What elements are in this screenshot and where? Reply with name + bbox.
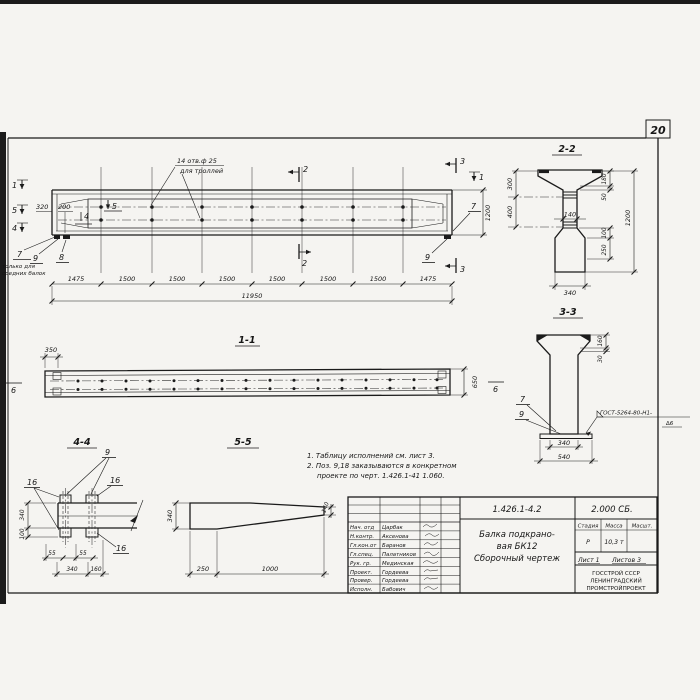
role-7: Исполн.: [350, 587, 373, 593]
organization: ГОССТРОЙ СССР ЛЕНИНГРАДСКИЙ ПРОМСТРОЙПРО…: [587, 570, 647, 592]
bottom-plate: [540, 434, 592, 439]
callout-4-4-16-right: 16: [97, 476, 123, 496]
cut-marker-2-top: 2: [288, 165, 308, 182]
svg-text:340: 340: [564, 289, 576, 297]
mass-value: 10,3 т: [604, 539, 624, 546]
scan-edge-left: [0, 132, 6, 604]
svg-text:340: 340: [20, 509, 26, 520]
section-marker-5-inner: 5: [104, 200, 122, 211]
title-line-2: вая БК12: [497, 542, 538, 552]
svg-text:300: 300: [506, 178, 514, 190]
view-4-4: 4-4 9 16 16 16: [20, 437, 143, 577]
marker-6-right: 6: [488, 382, 504, 394]
svg-text:180: 180: [602, 173, 608, 184]
sheet-number: Лист 1: [577, 557, 600, 564]
dims-3-3-bottom: 340 540: [534, 439, 598, 464]
callout-4-4-9: 9: [67, 448, 116, 494]
role-2: Гл.кон.от: [350, 543, 377, 549]
svg-text:2: 2: [302, 259, 307, 268]
view-5-5-profile: [190, 503, 324, 529]
note-line-1: 1. Таблицу исполнений см. лист 3.: [307, 452, 435, 460]
svg-text:100: 100: [20, 528, 26, 539]
note-line-2: 2. Поз. 9,18 заказываются в конкретном: [307, 462, 457, 470]
svg-text:340: 340: [66, 567, 77, 573]
segment-dimensions: 1475 1500 1500 1500 1500 1500 1500 1475 …: [50, 275, 455, 305]
main-elevation-view: 14 отв.ф 25 для троллей 1 5 4 320 200: [2, 157, 492, 305]
notes-block: 1. Таблицу исполнений см. лист 3. 2. Поз…: [307, 452, 457, 480]
svg-text:9: 9: [519, 410, 524, 419]
name-2: Баранов: [382, 543, 406, 549]
svg-text:1200: 1200: [484, 205, 492, 222]
svg-text:6: 6: [493, 385, 498, 394]
cut-marker-3-bottom: 3: [445, 258, 465, 274]
svg-text:1500: 1500: [119, 275, 136, 283]
dim-total: 11950: [242, 292, 263, 300]
doc-number: 1.426.1-4.2: [492, 505, 541, 515]
section-1-1-title: 1-1: [238, 335, 255, 346]
svg-text:7: 7: [520, 395, 526, 404]
svg-text:400: 400: [506, 206, 514, 218]
page-number: 20: [650, 124, 666, 137]
svg-text:1500: 1500: [269, 275, 286, 283]
dim-650: 650: [450, 367, 479, 398]
stage-header: Стадия: [578, 524, 599, 530]
dims-4-4-left: 340 100: [20, 501, 58, 540]
dims-5-5-left: 340: [166, 501, 190, 532]
mass-header: Масса: [605, 524, 622, 530]
section-marker-1-left: 1: [12, 180, 28, 190]
dim-200: 200: [58, 203, 70, 211]
svg-text:1475: 1475: [420, 275, 437, 283]
svg-text:340: 340: [166, 510, 174, 522]
svg-text:55: 55: [48, 551, 56, 557]
callout-4-4-16-bottom: 16: [97, 533, 129, 554]
scale-header: Масшт.: [632, 524, 653, 530]
svg-text:650: 650: [471, 376, 479, 388]
svg-text:140: 140: [321, 501, 331, 514]
svg-text:1: 1: [479, 173, 484, 182]
name-6: Гордеева: [382, 578, 409, 584]
svg-text:4: 4: [84, 212, 89, 221]
scan-edge-top: [0, 0, 700, 4]
svg-text:3: 3: [460, 265, 465, 274]
stage-mass-scale: Стадия Масса Масшт. Р 10,3 т: [578, 524, 653, 547]
name-0: Царбак: [382, 525, 404, 531]
callout-7-right: 7: [453, 202, 481, 231]
dim-320: 320: [36, 203, 48, 211]
svg-text:340: 340: [558, 439, 570, 447]
doc-code: 2.000 СБ.: [591, 505, 633, 515]
svg-text:1500: 1500: [320, 275, 337, 283]
svg-text:1: 1: [12, 181, 17, 190]
section-3-3-profile: [537, 335, 590, 434]
svg-text:140: 140: [564, 211, 576, 219]
svg-text:1475: 1475: [68, 275, 85, 283]
svg-text:1200: 1200: [624, 210, 632, 227]
name-7: Бабович: [382, 587, 406, 593]
svg-text:8: 8: [59, 253, 64, 262]
name-3: Палатников: [382, 552, 416, 558]
svg-text:160: 160: [90, 567, 101, 573]
svg-text:4: 4: [12, 224, 17, 233]
role-4: Рук. гр.: [350, 561, 371, 567]
role-5: Проект.: [350, 570, 372, 576]
dim-2-2-340: 340: [549, 272, 591, 297]
title-line-1: Балка подкрано-: [479, 530, 555, 540]
weld-gost-note: ГОСТ-5264-80-Н1-: [600, 411, 652, 417]
svg-text:16: 16: [116, 544, 126, 553]
weld-size: ∆6: [665, 420, 674, 427]
dim-1200-main: 1200: [452, 188, 492, 238]
svg-text:1500: 1500: [370, 275, 387, 283]
section-2-2-view: 2-2 300 400 140 180 50: [506, 144, 638, 297]
dims-4-4-bottom: 55 55 340 160: [42, 540, 109, 577]
signature-rows: Нач. отдЦарбак Н.контр.Аксенова Гл.кон.о…: [350, 524, 439, 593]
sheets-total: Листов 3: [611, 557, 641, 564]
name-5: Гордеева: [382, 570, 409, 576]
cut-marker-1-right: 1: [469, 172, 484, 182]
sheet-count: Лист 1 Листов 3: [577, 557, 646, 564]
svg-text:7: 7: [471, 202, 477, 211]
callout-4-4-16-left: 16: [24, 478, 59, 530]
section-1-1-view: 1-1 350 6 6: [6, 335, 504, 398]
svg-text:1000: 1000: [262, 565, 279, 573]
dims-2-2-left: 300 400: [506, 169, 538, 230]
hole-note-line2: для троллей: [179, 167, 223, 175]
svg-text:30: 30: [598, 355, 604, 363]
note-line-3: проекте по черт. 1.426.1-41 1.060.: [317, 472, 445, 480]
role-0: Нач. отд: [350, 525, 374, 531]
svg-text:350: 350: [45, 346, 57, 354]
dim-350: 350: [40, 346, 63, 368]
section-3-3-title: 3-3: [559, 307, 577, 318]
svg-text:16: 16: [27, 478, 37, 487]
section-marker-4-inner: 4: [75, 212, 92, 224]
org-line-2: ЛЕНИНГРАДСКИЙ: [590, 578, 642, 585]
svg-text:50: 50: [602, 193, 608, 201]
role-1: Н.контр.: [350, 534, 374, 540]
svg-text:250: 250: [602, 244, 608, 255]
svg-text:1500: 1500: [169, 275, 186, 283]
section-2-2-title: 2-2: [558, 144, 576, 155]
callout-8-left: 8: [56, 240, 69, 263]
drawing-title: Балка подкрано- вая БК12 Сборочный черте…: [474, 530, 560, 564]
section-marker-5-left: 5: [12, 205, 28, 215]
callout-3-3-9: 9: [515, 410, 561, 434]
dim-2-2-140: 140: [554, 211, 586, 222]
svg-text:6: 6: [11, 386, 16, 395]
engineering-drawing-sheet: 20: [0, 0, 700, 700]
stage-value: Р: [586, 539, 590, 546]
svg-text:1500: 1500: [219, 275, 236, 283]
section-marker-4-left: 4: [12, 223, 28, 233]
svg-text:3: 3: [460, 157, 465, 166]
svg-text:9: 9: [33, 254, 38, 263]
section-2-2-profile: [538, 170, 602, 272]
svg-text:7: 7: [17, 250, 23, 259]
callout-9-left: 9: [30, 239, 58, 264]
section-3-3-view: 3-3 160 30 7 9 ГОСТ-5264-80-Н1-: [515, 307, 690, 464]
title-block: Нач. отдЦарбак Н.контр.Аксенова Гл.кон.о…: [348, 497, 657, 593]
name-1: Аксенова: [381, 534, 409, 540]
svg-text:16: 16: [110, 476, 120, 485]
weld-annotation: ГОСТ-5264-80-Н1- ∆6: [586, 411, 690, 436]
svg-text:5: 5: [112, 202, 117, 211]
title-line-3: Сборочный чертеж: [474, 554, 560, 564]
svg-text:9: 9: [105, 448, 110, 457]
svg-text:100: 100: [602, 227, 608, 238]
org-line-1: ГОССТРОЙ СССР: [592, 570, 640, 577]
view-4-4-title: 4-4: [72, 437, 91, 448]
cut-marker-2-bottom: 2: [299, 244, 311, 268]
note7-line2: средних балок: [2, 271, 46, 277]
svg-text:160: 160: [598, 335, 604, 346]
name-4: Мединская: [382, 561, 414, 567]
note7-line1: только для: [2, 264, 36, 270]
svg-text:55: 55: [79, 551, 87, 557]
org-line-3: ПРОМСТРОЙПРОЕКТ: [587, 585, 647, 592]
svg-text:9: 9: [425, 253, 430, 262]
hole-note-line1: 14 отв.ф 25: [177, 157, 217, 165]
callout-7-left: 7 только для средних балок: [2, 237, 55, 277]
dims-5-5-bottom: 250 1000: [185, 517, 329, 578]
signatures: [423, 524, 439, 589]
cut-marker-3-top: 3: [445, 157, 465, 173]
svg-text:540: 540: [558, 453, 570, 461]
role-3: Гл.спец.: [350, 552, 373, 558]
svg-text:5: 5: [12, 206, 17, 215]
view-5-5-title: 5-5: [234, 437, 252, 448]
hole-note: 14 отв.ф 25 для троллей: [151, 157, 224, 218]
role-6: Провер.: [350, 578, 372, 584]
svg-text:2: 2: [303, 165, 308, 174]
svg-text:250: 250: [197, 565, 209, 573]
callout-9-right: 9: [422, 239, 447, 263]
drawing-frame: 20: [8, 120, 670, 593]
